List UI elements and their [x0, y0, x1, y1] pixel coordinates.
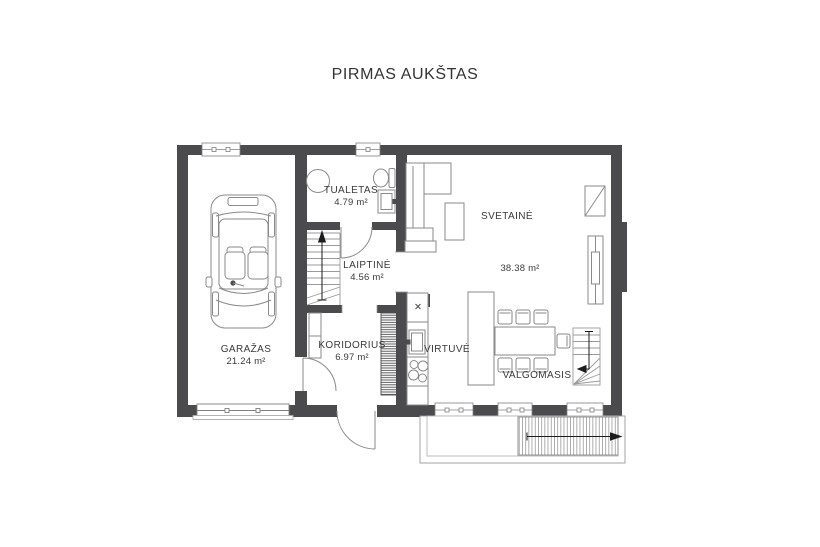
washbasin — [378, 190, 396, 213]
staircase-winder — [573, 328, 600, 385]
terrace — [420, 416, 625, 463]
label-svetaine-area: 38.38 m² — [500, 263, 539, 275]
room-name: TUALETAS — [324, 185, 378, 196]
tv-unit — [588, 236, 603, 304]
room-name: VIRTUVĖ — [424, 344, 470, 355]
window-toilet-top — [356, 143, 380, 156]
sofa — [405, 163, 451, 252]
staircase-main — [307, 233, 340, 305]
room-area: 4.79 m² — [324, 197, 378, 209]
label-tualetas: TUALETAS 4.79 m² — [324, 185, 378, 209]
dining-chair-end — [557, 334, 570, 348]
room-name: VALGOMASIS — [503, 370, 572, 381]
room-area: 21.24 m² — [221, 356, 272, 368]
label-valgomasis: VALGOMASIS — [503, 370, 572, 382]
toilet-door — [341, 227, 372, 258]
window-bottom-3 — [567, 403, 603, 417]
room-name: SVETAINĖ — [481, 211, 533, 222]
fireplace — [585, 186, 605, 216]
room-name: GARAŽAS — [221, 344, 272, 355]
room-area: 6.97 m² — [318, 352, 385, 364]
floorplan-drawing — [0, 0, 820, 547]
room-name: LAIPTINĖ — [343, 260, 391, 271]
window-bottom-2 — [498, 403, 532, 417]
room-area: 38.38 m² — [500, 263, 539, 275]
dining-chairs-top — [498, 310, 548, 324]
coffee-table — [445, 203, 464, 240]
garage-door — [193, 404, 293, 420]
label-virtuve: VIRTUVĖ — [424, 344, 470, 356]
room-name: KORIDORIUS — [318, 340, 385, 351]
label-garazas: GARAŽAS 21.24 m² — [221, 344, 272, 368]
room-area: 4.56 m² — [343, 272, 391, 284]
kitchen-sink — [406, 330, 425, 354]
window-garage-top — [202, 143, 240, 156]
dining-table — [495, 327, 555, 355]
car-top-view — [206, 195, 281, 328]
label-laiptine: LAIPTINĖ 4.56 m² — [343, 260, 391, 284]
dining-set — [495, 310, 570, 372]
kitchen-island — [468, 292, 494, 385]
window-bottom-1 — [435, 403, 473, 417]
floorplan-page: PIRMAS AUKŠTAS — [0, 0, 820, 547]
stairs-up-arrow — [318, 232, 327, 301]
label-svetaine: SVETAINĖ — [481, 211, 533, 223]
label-koridorius: KORIDORIUS 6.97 m² — [318, 340, 385, 364]
